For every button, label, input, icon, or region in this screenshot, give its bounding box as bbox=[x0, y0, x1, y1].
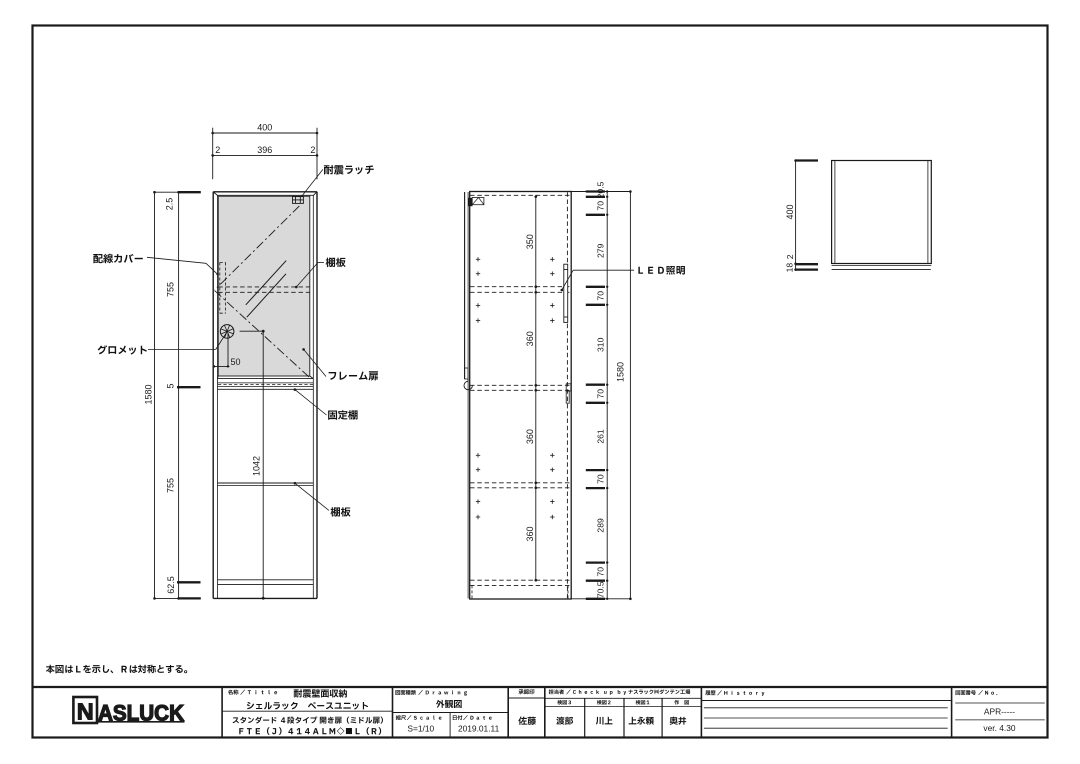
svg-text:310: 310 bbox=[596, 337, 606, 352]
svg-text:261: 261 bbox=[596, 429, 606, 444]
svg-text:2.5: 2.5 bbox=[164, 198, 174, 211]
svg-text:62.5: 62.5 bbox=[166, 576, 176, 594]
svg-text:755: 755 bbox=[166, 478, 176, 493]
svg-text:5: 5 bbox=[166, 383, 176, 388]
svg-text:N: N bbox=[77, 699, 94, 725]
svg-text:2: 2 bbox=[310, 145, 315, 155]
svg-text:1042: 1042 bbox=[252, 456, 262, 476]
svg-text:20.5: 20.5 bbox=[596, 181, 606, 198]
svg-text:755: 755 bbox=[166, 282, 176, 297]
svg-text:1580: 1580 bbox=[615, 362, 625, 382]
svg-text:2: 2 bbox=[785, 254, 795, 259]
svg-text:279: 279 bbox=[596, 243, 606, 258]
svg-text:360: 360 bbox=[525, 331, 535, 346]
svg-text:2019.01.11: 2019.01.11 bbox=[458, 724, 500, 734]
svg-text:396: 396 bbox=[257, 145, 272, 155]
svg-text:50: 50 bbox=[231, 357, 241, 367]
svg-text:1580: 1580 bbox=[144, 384, 154, 404]
svg-text:360: 360 bbox=[525, 429, 535, 444]
svg-text:S=1/10: S=1/10 bbox=[407, 724, 434, 734]
svg-text:70: 70 bbox=[596, 474, 606, 484]
svg-text:70: 70 bbox=[596, 389, 606, 399]
svg-text:400: 400 bbox=[785, 204, 795, 219]
svg-text:360: 360 bbox=[525, 526, 535, 541]
svg-text:2: 2 bbox=[215, 145, 220, 155]
svg-text:70.5: 70.5 bbox=[596, 581, 606, 598]
svg-text:70: 70 bbox=[596, 291, 606, 301]
svg-text:400: 400 bbox=[257, 122, 272, 132]
svg-text:18: 18 bbox=[785, 263, 795, 273]
svg-text:ver. 4.30: ver. 4.30 bbox=[983, 723, 1015, 733]
svg-text:70: 70 bbox=[596, 567, 606, 577]
svg-text:70: 70 bbox=[596, 201, 606, 211]
svg-text:289: 289 bbox=[596, 518, 606, 533]
svg-text:APR-----: APR----- bbox=[984, 707, 1015, 717]
svg-text:350: 350 bbox=[525, 234, 535, 249]
